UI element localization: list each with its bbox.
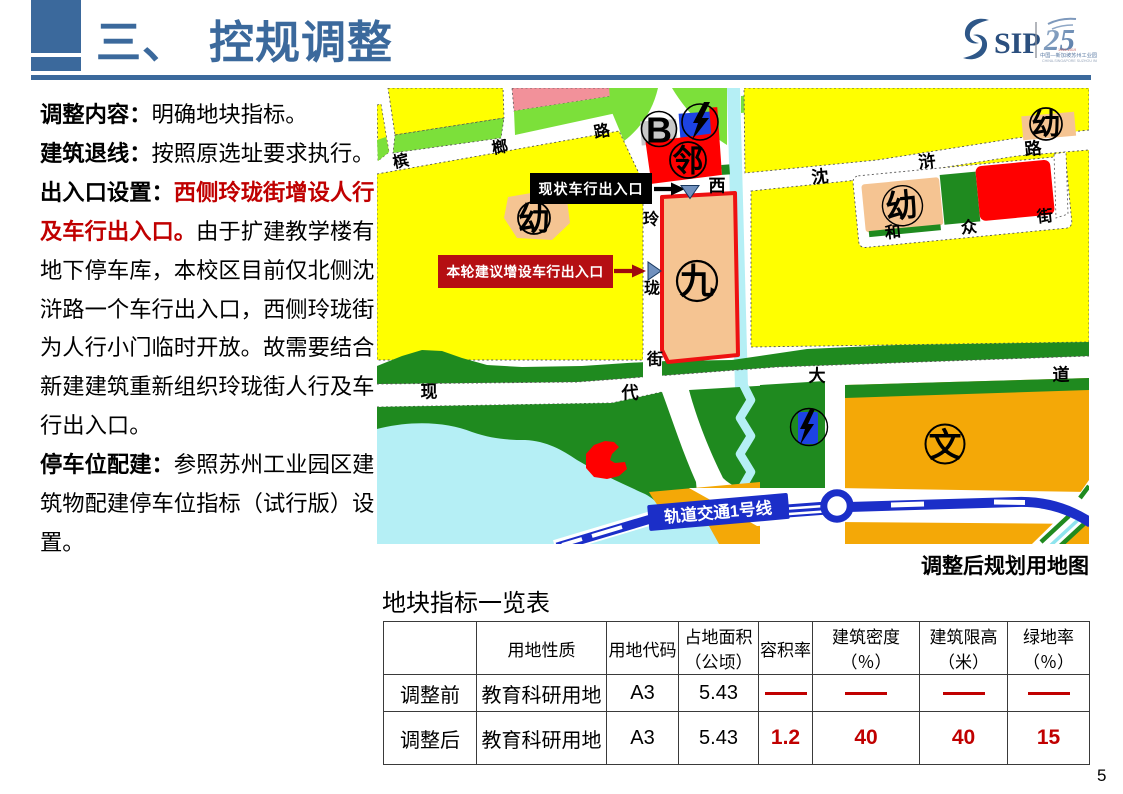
svg-text:道: 道 — [1053, 365, 1070, 385]
svg-text:街: 街 — [1035, 206, 1054, 227]
svg-text:现状车行出入口: 现状车行出入口 — [539, 181, 644, 197]
svg-text:西: 西 — [709, 177, 726, 196]
svg-text:现: 现 — [421, 383, 438, 402]
svg-text:1994-2019: 1994-2019 — [1058, 48, 1076, 52]
svg-text:沈: 沈 — [810, 166, 829, 188]
svg-text:玲: 玲 — [643, 210, 660, 229]
svg-text:街: 街 — [646, 350, 663, 369]
svg-text:九: 九 — [679, 263, 714, 302]
svg-text:浒: 浒 — [917, 151, 936, 173]
svg-text:代: 代 — [621, 383, 639, 403]
svg-text:本轮建议增设车行出入口: 本轮建议增设车行出入口 — [446, 264, 603, 280]
svg-text:幼: 幼 — [884, 186, 919, 225]
svg-text:SIP: SIP — [994, 27, 1041, 60]
svg-text:B: B — [646, 110, 672, 151]
svg-text:路: 路 — [1023, 138, 1043, 160]
svg-text:幼: 幼 — [518, 201, 550, 237]
svg-text:珑: 珑 — [644, 279, 660, 298]
svg-text:和: 和 — [884, 222, 902, 243]
svg-text:大: 大 — [809, 366, 826, 386]
svg-text:中国—新加坡苏州工业园区: 中国—新加坡苏州工业园区 — [1040, 51, 1097, 59]
svg-text:CHINA-SINGAPORE SUZHOU INDUSTR: CHINA-SINGAPORE SUZHOU INDUSTRIAL PARK — [1042, 59, 1097, 63]
svg-text:邻: 邻 — [673, 144, 704, 179]
svg-text:文: 文 — [929, 427, 962, 464]
svg-text:众: 众 — [960, 217, 979, 238]
svg-text:幼: 幼 — [1031, 108, 1060, 141]
